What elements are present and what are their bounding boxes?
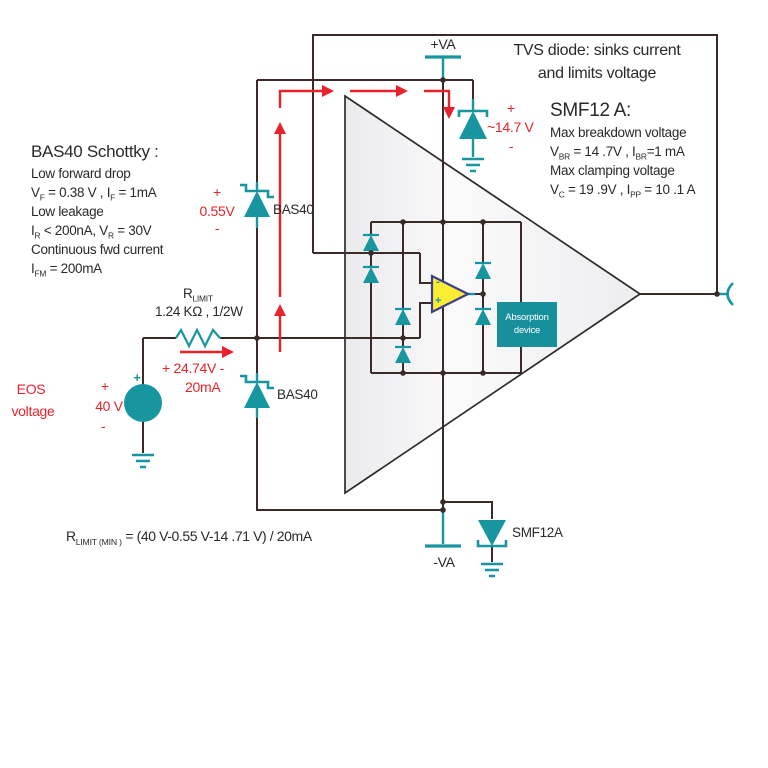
bas40-note-line3: Low leakage <box>31 205 104 219</box>
eos-label-line1: EOS <box>17 382 46 397</box>
source-terminal-plus: + <box>133 371 140 385</box>
smf12-line1: Max breakdown voltage <box>550 126 686 140</box>
absorption-label-line1: Absorption <box>505 312 548 325</box>
eos-voltage-value: 40 V <box>95 399 123 414</box>
rlimit-formula: RLIMIT (MIN ) = (40 V-0.55 V-14 .71 V) /… <box>66 529 312 544</box>
smf12-title: SMF12 A: <box>550 101 631 121</box>
circuit-drawing <box>0 0 768 768</box>
rlimit-name: RLIMIT <box>183 287 213 301</box>
resistor-icon <box>176 330 220 346</box>
source-ground-icon <box>132 455 154 467</box>
bas40-note-line1: Low forward drop <box>31 167 131 181</box>
bas40-note-line2: VF = 0.38 V , IF = 1mA <box>31 186 156 200</box>
rlimit-value: 1.24 KΩ , 1/2W <box>155 305 243 319</box>
smf12a-diode-icon <box>478 520 506 546</box>
diode1-plus-sign: + <box>213 185 221 200</box>
smf12a-ground-icon <box>481 564 503 576</box>
smf12a-label: SMF12A <box>512 526 563 540</box>
bas40-note-title: BAS40 Schottky : <box>31 143 159 161</box>
smf12-line3: Max clamping voltage <box>550 164 675 178</box>
tvs-note-line2: and limits voltage <box>538 66 656 83</box>
rlimit-current-value: 20mA <box>185 380 220 395</box>
eos-minus-sign: - <box>101 419 105 434</box>
eos-label-line2: voltage <box>11 404 54 419</box>
diode1-minus-sign: - <box>215 221 219 236</box>
eos-protection-schematic: Absorption device +VA TVS diode: sinks c… <box>0 0 768 768</box>
vpos-supply-icon <box>425 57 461 80</box>
absorption-label-line2: device <box>514 325 540 338</box>
tvs-plus-sign: + <box>507 101 515 116</box>
tvs-minus-sign: - <box>509 139 513 154</box>
vpos-label: +VA <box>431 37 456 52</box>
rlimit-drop-value: + 24.74V - <box>162 361 224 376</box>
bas40-diode-bottom-icon <box>240 373 274 418</box>
diode1-voltage-value: 0.55V <box>199 204 234 219</box>
bas40-note-line5: Continuous fwd current <box>31 243 163 257</box>
bas40-label-bottom: BAS40 <box>277 388 318 402</box>
tvs-voltage-value: ~14.7 V <box>487 120 534 135</box>
bas40-diode-top-icon <box>240 182 274 228</box>
output-terminal-icon <box>719 283 733 305</box>
vneg-supply-icon <box>425 510 461 546</box>
top-supply-wire <box>257 80 473 99</box>
tvs-ground-icon <box>462 159 484 171</box>
tvs-note-line1: TVS diode: sinks current <box>513 43 680 60</box>
bas40-note-line4: IR < 200nA, VR = 30V <box>31 224 151 238</box>
bas40-label-top: BAS40 <box>273 203 314 217</box>
smf12-line2: VBR = 14 .7V , IBR=1 mA <box>550 145 685 159</box>
absorption-device-box: Absorption device <box>497 302 557 347</box>
eos-plus-sign: + <box>101 379 109 394</box>
tvs-diode-icon <box>459 99 487 157</box>
vneg-label: -VA <box>433 555 454 570</box>
eos-source-icon <box>124 384 162 422</box>
opamp-plus-input: + <box>435 296 441 308</box>
smf12-line4: VC = 19 .9V , IPP = 10 .1 A <box>550 183 695 197</box>
bas40-note-line6: IFM = 200mA <box>31 262 102 276</box>
opamp-minus-input: - <box>436 277 439 289</box>
